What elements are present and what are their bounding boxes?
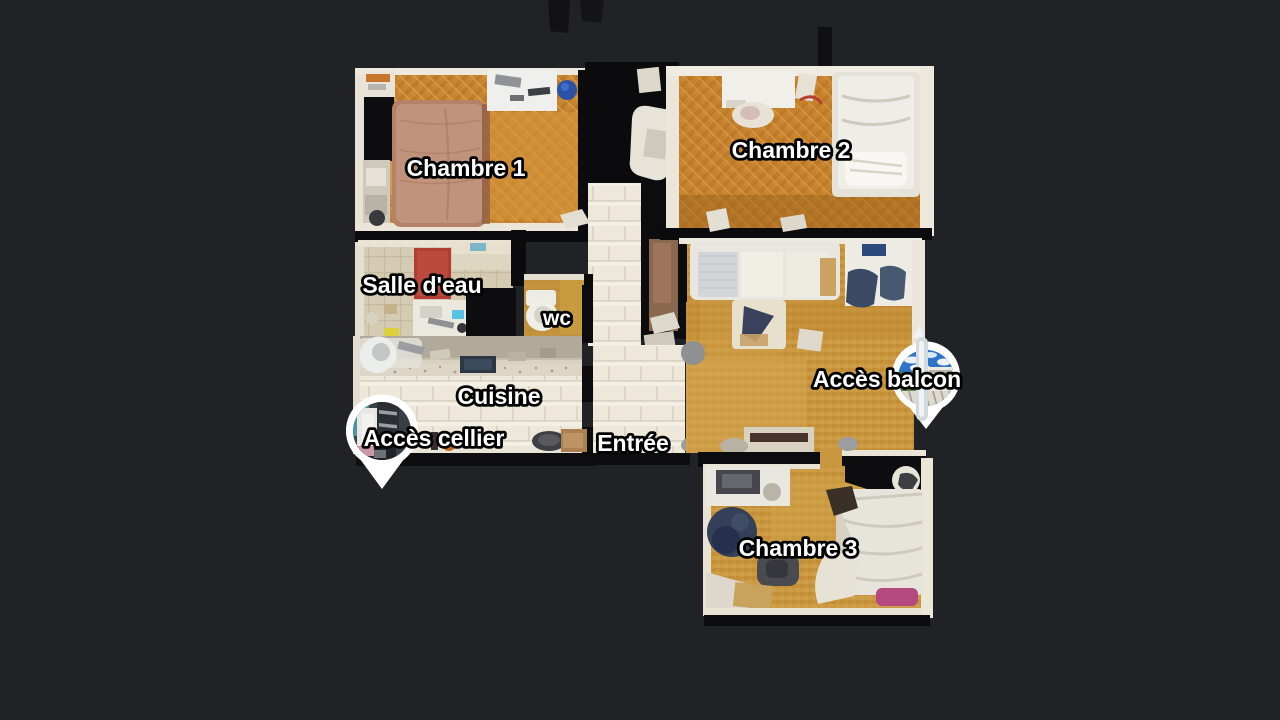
svg-text:Cuisine: Cuisine bbox=[457, 383, 540, 409]
svg-text:Chambre 3: Chambre 3 bbox=[739, 535, 858, 561]
svg-text:Salle d'eau: Salle d'eau bbox=[362, 272, 481, 298]
svg-text:Accès balcon: Accès balcon bbox=[813, 366, 961, 392]
svg-text:wc: wc bbox=[542, 307, 571, 330]
svg-text:Chambre 1: Chambre 1 bbox=[407, 155, 526, 181]
svg-text:Entrée: Entrée bbox=[597, 430, 669, 456]
svg-text:Accès cellier: Accès cellier bbox=[364, 425, 505, 451]
svg-text:Chambre 2: Chambre 2 bbox=[732, 137, 851, 163]
